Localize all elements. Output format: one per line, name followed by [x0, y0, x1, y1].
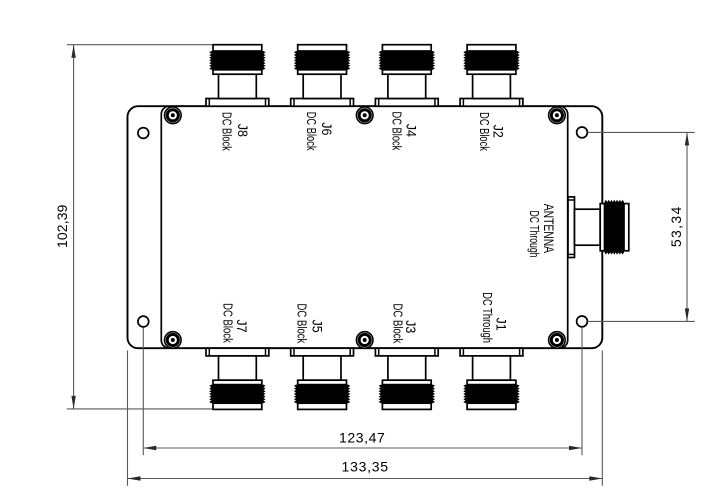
svg-text:DC Block: DC Block — [220, 112, 235, 151]
svg-text:J1: J1 — [494, 318, 510, 331]
svg-text:DC Through: DC Through — [527, 211, 542, 258]
svg-text:J6: J6 — [319, 122, 335, 135]
svg-text:DC Block: DC Block — [390, 111, 405, 150]
svg-text:J8: J8 — [235, 124, 251, 137]
svg-text:DC Block: DC Block — [477, 112, 492, 151]
svg-text:DC Block: DC Block — [294, 304, 309, 344]
svg-text:133,35: 133,35 — [342, 458, 389, 474]
svg-text:J5: J5 — [309, 320, 325, 333]
svg-text:ANTENNA: ANTENNA — [541, 204, 557, 254]
svg-text:J7: J7 — [234, 319, 250, 332]
svg-text:J3: J3 — [403, 320, 419, 333]
svg-text:J4: J4 — [403, 124, 419, 137]
svg-text:102,39: 102,39 — [54, 204, 70, 248]
svg-text:DC Block: DC Block — [220, 303, 235, 343]
svg-text:DC Block: DC Block — [304, 112, 319, 151]
svg-text:123,47: 123,47 — [339, 430, 385, 446]
svg-text:J2: J2 — [491, 125, 507, 138]
svg-text:DC Through: DC Through — [480, 292, 495, 343]
svg-text:53,34: 53,34 — [668, 206, 684, 247]
